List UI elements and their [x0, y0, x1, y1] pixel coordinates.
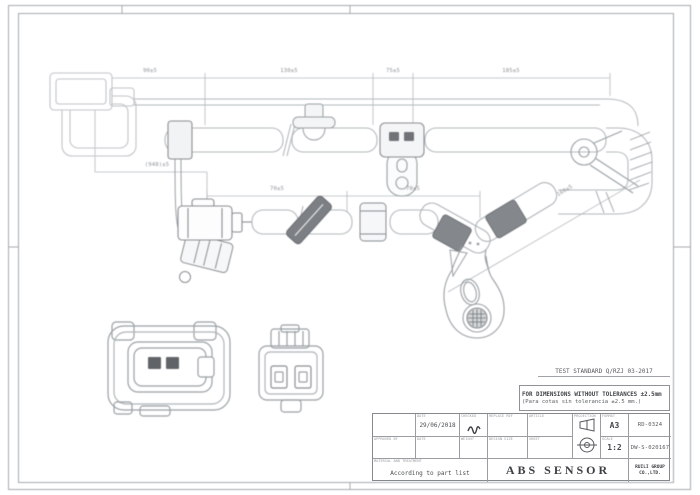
cell-weight: WEIGHT — [460, 437, 488, 459]
dimension-label: 75±5 — [375, 68, 411, 74]
cell-article: ARTICLE — [528, 414, 573, 437]
first-angle-projection-icon — [575, 417, 599, 455]
tolerance-note-box: FOR DIMENSIONS WITHOUT TOLERANCES ±2.5mm… — [519, 385, 670, 411]
company-name: RUILI GROUP CO.,LTD. — [629, 465, 671, 476]
dimension-label: 130±5 — [271, 68, 307, 74]
signature-mark — [466, 422, 482, 434]
cell-code-bottom: DW-S-020167 — [629, 437, 671, 459]
drawing-title: ABS SENSOR — [506, 463, 610, 478]
main-connector-side-view — [50, 73, 136, 156]
cell-date: DATE 29/06/2018 — [416, 414, 460, 437]
cell-material: MATERIAL AND TREATMENT According to part… — [373, 459, 488, 482]
cell-design-size: DESIGN SIZE — [488, 437, 528, 459]
cell-projection: PROJECTION — [573, 414, 601, 459]
diagonal-clip — [285, 195, 333, 246]
connector-face-view-large — [108, 322, 230, 416]
tape-wrap-right — [485, 199, 528, 239]
cell-scale: SCALE 1:2 — [601, 437, 629, 459]
lower-corrugated-tube — [252, 206, 438, 238]
top-harness-wire — [134, 99, 638, 126]
cell-format: FORMAT A3 — [601, 414, 629, 437]
grommet — [293, 104, 335, 140]
test-standard-note: TEST STANDARD Q/RZJ 03-2017 — [538, 368, 670, 377]
part-number: DW-S-020167 — [631, 445, 670, 451]
dimension-label: (948)±5 — [130, 162, 184, 168]
cell-date2: DATE — [416, 437, 460, 459]
cell-code-top: RD-0324 — [629, 414, 671, 437]
dimension-label: 70±5 — [259, 186, 295, 192]
dimension-label: 185±5 — [493, 68, 529, 74]
tolerance-note-es: (Para cotas sin tolerancia ±2.5 mm.) — [522, 399, 667, 405]
date-value: 29/06/2018 — [419, 422, 455, 429]
cell-drawn-by — [373, 414, 416, 437]
ring-terminal — [180, 272, 191, 283]
cell-replace-ref: REPLACE REF — [488, 414, 528, 437]
cell-company: RUILI GROUP CO.,LTD. — [629, 459, 671, 482]
material-value: According to part list — [390, 470, 469, 477]
tube-clip — [168, 121, 192, 159]
dimension-label: 90±5 — [132, 68, 168, 74]
cell-checked: CHECKED — [460, 414, 488, 437]
cell-title: ABS SENSOR — [488, 459, 629, 482]
format-value: A3 — [610, 421, 620, 430]
abs-sensor-head — [444, 246, 504, 338]
dimension-label: 70±5 — [395, 186, 431, 192]
cell-sheet: SHEET — [528, 437, 573, 459]
cell-approved-by: APPROVED BY — [373, 437, 416, 459]
tolerance-note-en: FOR DIMENSIONS WITHOUT TOLERANCES ±2.5mm — [522, 392, 667, 398]
drawing-code: RD-0324 — [638, 422, 663, 428]
dimension-lines — [95, 73, 640, 292]
branch-connector-side-view — [178, 199, 252, 240]
title-block: DATE 29/06/2018 CHECKED REPLACE REF ARTI… — [372, 413, 670, 481]
scale-value: 1:2 — [607, 443, 621, 452]
connector-face-view-small — [259, 325, 323, 412]
drawing-sheet: 90±5 130±5 75±5 185±5 (948)±5 70±5 70±5 … — [0, 0, 700, 495]
cylindrical-grommet — [360, 203, 386, 241]
